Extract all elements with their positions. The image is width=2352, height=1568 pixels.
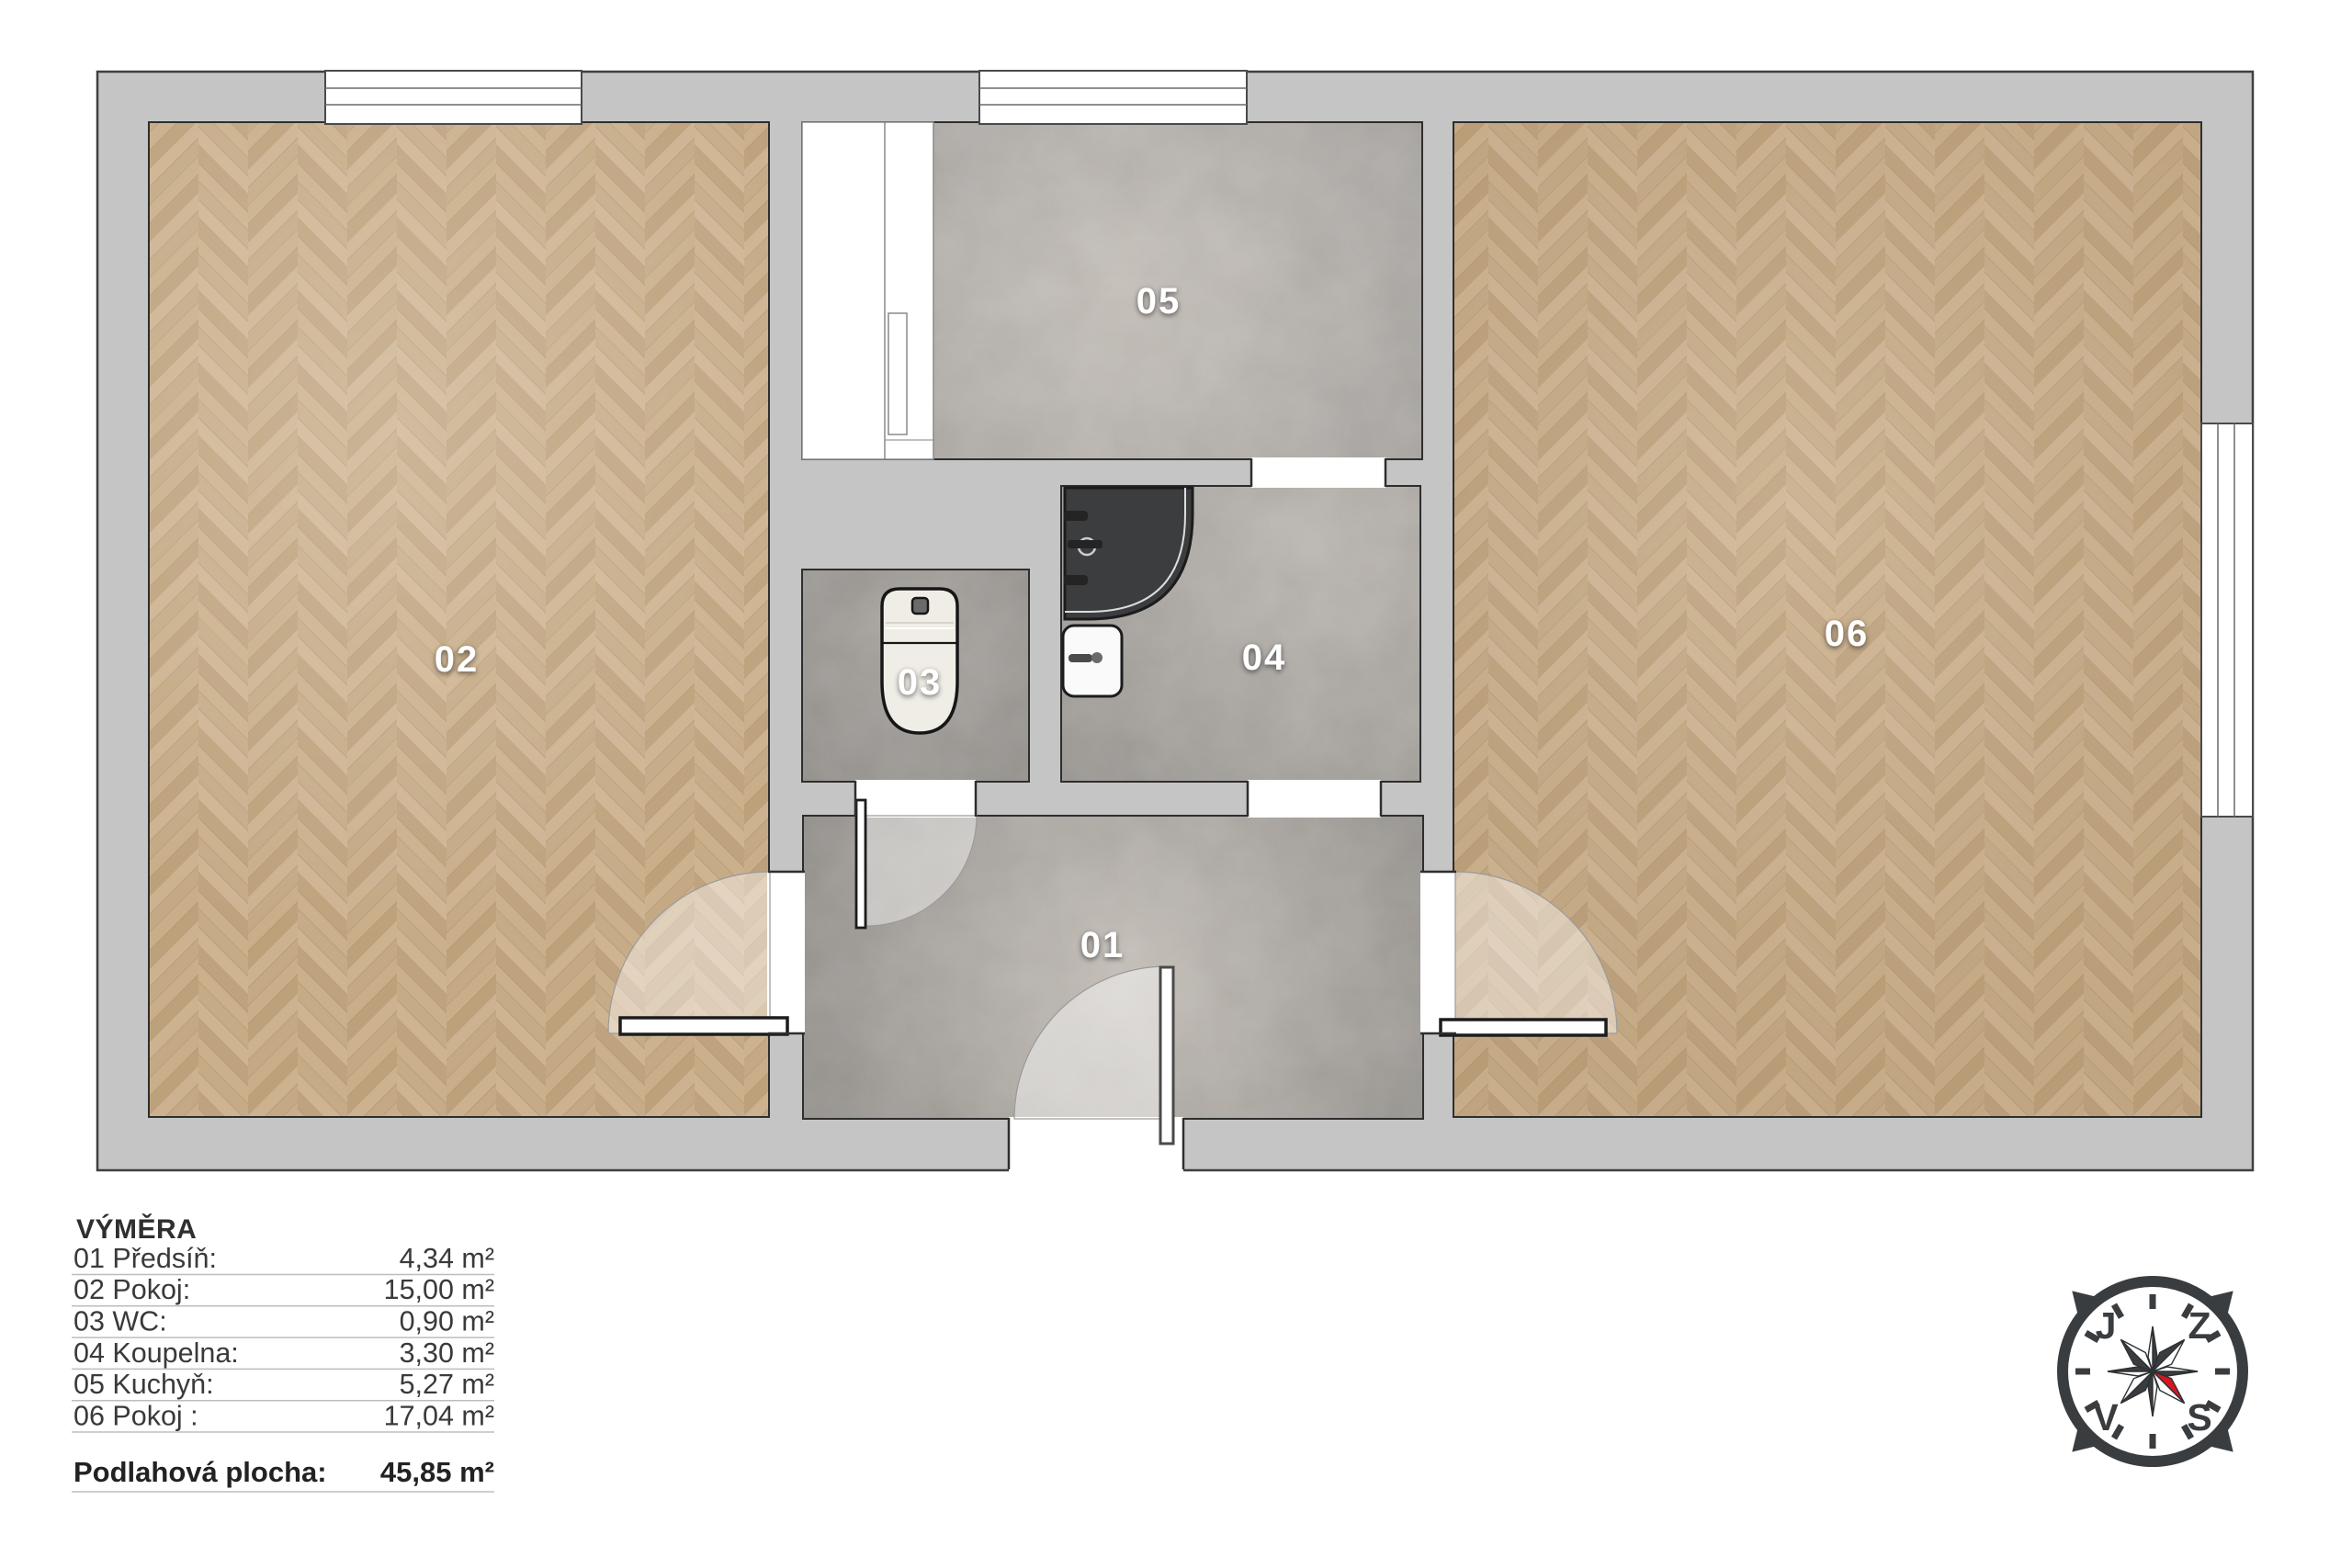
svg-text:3,30 m²: 3,30 m² — [400, 1337, 494, 1369]
svg-text:4,34 m²: 4,34 m² — [400, 1243, 494, 1274]
svg-text:04 Koupelna:: 04 Koupelna: — [73, 1337, 239, 1369]
svg-text:04: 04 — [1242, 637, 1287, 678]
svg-text:03 WC:: 03 WC: — [73, 1306, 167, 1337]
svg-text:17,04 m²: 17,04 m² — [384, 1401, 494, 1432]
svg-text:01 Předsíň:: 01 Předsíň: — [73, 1243, 217, 1274]
svg-text:Podlahová plocha:: Podlahová plocha: — [73, 1456, 327, 1488]
svg-text:0,90 m²: 0,90 m² — [400, 1306, 494, 1337]
svg-text:VÝMĚRA: VÝMĚRA — [76, 1213, 197, 1245]
svg-text:5,27 m²: 5,27 m² — [400, 1369, 494, 1400]
svg-text:01: 01 — [1080, 925, 1125, 965]
svg-text:J: J — [2096, 1304, 2117, 1347]
svg-text:15,00 m²: 15,00 m² — [384, 1274, 494, 1305]
svg-text:03: 03 — [898, 662, 943, 703]
svg-text:Z: Z — [2188, 1304, 2211, 1347]
svg-text:V: V — [2093, 1396, 2119, 1438]
svg-text:02: 02 — [435, 639, 480, 680]
svg-text:S: S — [2187, 1396, 2211, 1438]
svg-text:06 Pokoj :: 06 Pokoj : — [73, 1401, 198, 1432]
svg-text:45,85 m²: 45,85 m² — [380, 1456, 494, 1488]
svg-text:05 Kuchyň:: 05 Kuchyň: — [73, 1369, 214, 1400]
svg-text:05: 05 — [1136, 281, 1182, 321]
svg-text:02 Pokoj:: 02 Pokoj: — [73, 1274, 190, 1305]
svg-text:06: 06 — [1825, 614, 1870, 654]
